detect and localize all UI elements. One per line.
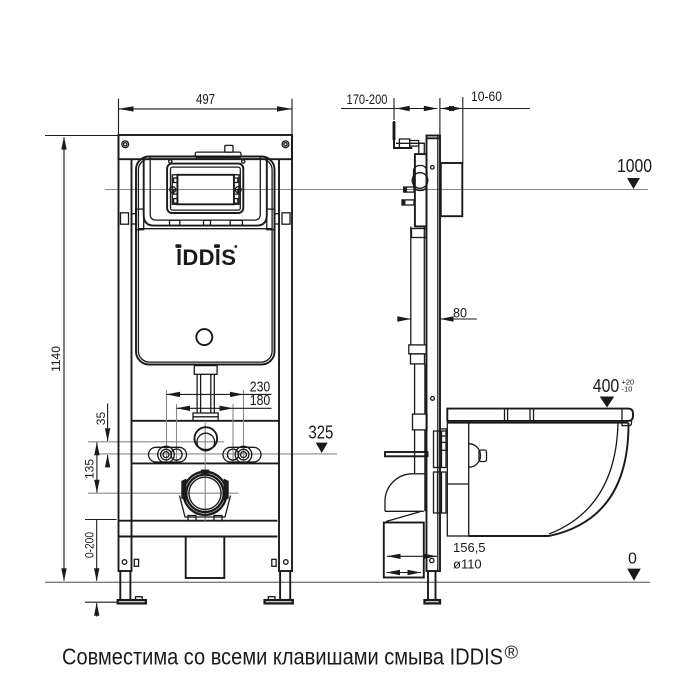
svg-text:135: 135 (83, 459, 97, 479)
svg-text:400: 400 (593, 376, 620, 396)
svg-text:0-200: 0-200 (83, 532, 97, 558)
svg-text:ø110: ø110 (453, 557, 482, 572)
svg-text:1140: 1140 (49, 346, 63, 372)
svg-text:®: ® (505, 642, 519, 663)
svg-text:0: 0 (628, 551, 637, 568)
svg-text:lDDlS: lDDlS (176, 245, 236, 270)
svg-text:497: 497 (196, 92, 215, 108)
svg-text:156,5: 156,5 (453, 540, 486, 555)
svg-text:10-60: 10-60 (471, 88, 502, 104)
svg-text:Совместима со всеми клавишами: Совместима со всеми клавишами смыва IDDI… (62, 644, 503, 670)
svg-text:325: 325 (308, 423, 333, 443)
svg-text:1000: 1000 (617, 156, 652, 176)
svg-text:80: 80 (453, 305, 467, 321)
svg-text:-10: -10 (622, 385, 633, 394)
svg-text:170-200: 170-200 (347, 91, 388, 107)
svg-text:35: 35 (94, 412, 108, 426)
svg-text:180: 180 (250, 393, 271, 409)
